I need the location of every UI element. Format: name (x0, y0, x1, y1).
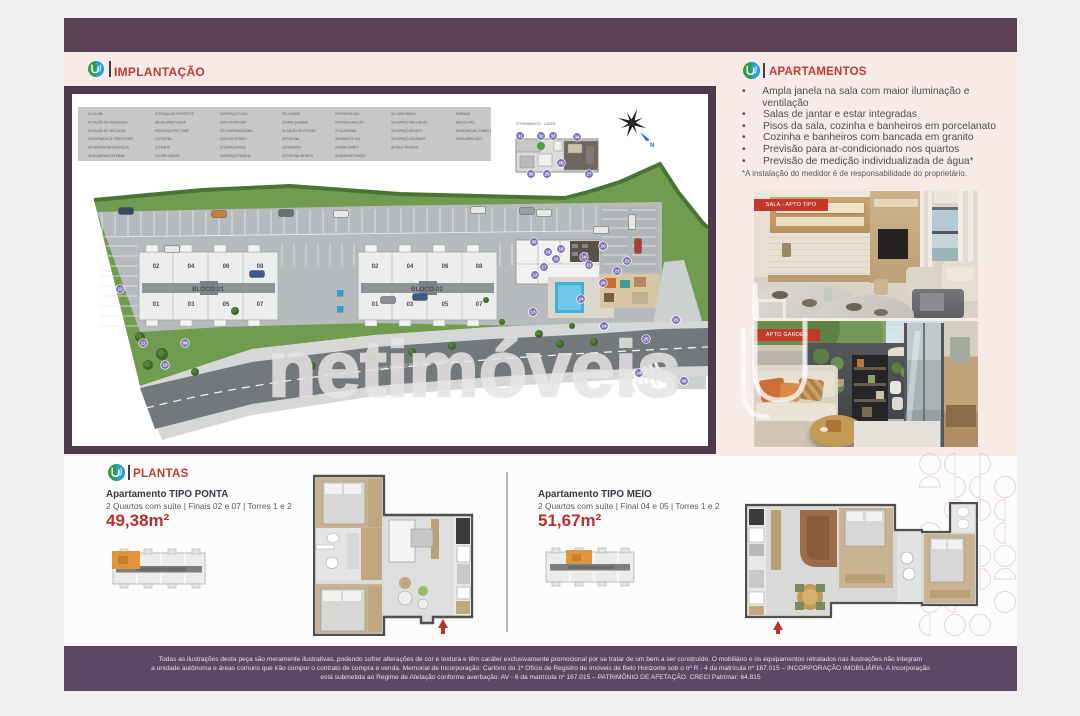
svg-text:11 HORTA: 11 HORTA (155, 146, 171, 150)
svg-text:02: 02 (153, 264, 160, 270)
svg-text:PARKING: PARKING (456, 112, 471, 116)
svg-text:22: 22 (624, 259, 630, 264)
svg-text:29 MINI CAMPO: 29 MINI CAMPO (335, 146, 359, 150)
svg-text:08 GOURMET DUNA: 08 GOURMET DUNA (155, 120, 186, 124)
svg-text:netimóveis: netimóveis (268, 324, 681, 413)
svg-text:18 ESPAÇO FAMÍLIA: 18 ESPAÇO FAMÍLIA (220, 154, 251, 158)
svg-text:19: 19 (581, 255, 587, 260)
svg-text:07: 07 (257, 302, 264, 308)
svg-text:09: 09 (182, 341, 188, 346)
svg-text:26 PRAÇA ADULTO: 26 PRAÇA ADULTO (335, 120, 364, 124)
svg-text:04: 04 (188, 264, 195, 270)
svg-text:24: 24 (578, 297, 584, 302)
svg-text:33 ESPAÇO BEAUTY: 33 ESPAÇO BEAUTY (391, 129, 423, 133)
svg-text:08: 08 (257, 264, 264, 270)
svg-text:27: 27 (586, 172, 592, 177)
svg-text:24 PISCINA INFANTIL: 24 PISCINA INFANTIL (282, 154, 314, 158)
svg-text:06 ACADEMIA EXTERNA: 06 ACADEMIA EXTERNA (88, 154, 126, 158)
svg-text:16: 16 (545, 250, 551, 255)
svg-text:31: 31 (517, 134, 523, 139)
svg-text:BICICLETAS: BICICLETAS (456, 120, 474, 124)
svg-text:01: 01 (372, 302, 379, 308)
svg-text:25: 25 (673, 318, 679, 323)
svg-text:17 ESPAÇO KIDS: 17 ESPAÇO KIDS (220, 146, 246, 150)
svg-text:2º PAVIMENTO - LAZER: 2º PAVIMENTO - LAZER (516, 122, 556, 126)
svg-text:32 ESPAÇO WELLNESS: 32 ESPAÇO WELLNESS (391, 120, 427, 124)
svg-text:03: 03 (188, 302, 195, 308)
svg-text:01: 01 (153, 302, 160, 308)
svg-text:06: 06 (442, 264, 449, 270)
svg-text:31 COWORKING: 31 COWORKING (391, 112, 416, 116)
svg-text:02 SALÃO DE MUDANÇAS: 02 SALÃO DE MUDANÇAS (88, 119, 128, 124)
svg-text:13: 13 (530, 310, 536, 315)
svg-text:17: 17 (541, 265, 547, 270)
svg-text:22 PISCINA: 22 PISCINA (282, 137, 300, 141)
svg-text:13 ESPAÇO FOGO: 13 ESPAÇO FOGO (220, 112, 248, 116)
svg-text:13: 13 (532, 273, 538, 278)
svg-text:29: 29 (544, 172, 550, 177)
svg-text:21 SALÃO DE FESTAS: 21 SALÃO DE FESTAS (282, 128, 315, 133)
svg-text:28 MIRANTE SUL: 28 MIRANTE SUL (335, 137, 361, 141)
svg-text:27 ACADEMIA: 27 ACADEMIA (335, 129, 357, 133)
svg-text:14 PLAYGROUND: 14 PLAYGROUND (220, 120, 247, 124)
svg-text:02: 02 (372, 264, 379, 270)
svg-text:12 GRELHADOS: 12 GRELHADOS (155, 154, 179, 158)
svg-text:RESIDENCIAL CONECT: RESIDENCIAL CONECT (456, 129, 492, 133)
svg-text:10: 10 (162, 363, 168, 368)
svg-text:01 CLUBE: 01 CLUBE (88, 112, 103, 116)
svg-text:34 ESPAÇO GOURMET: 34 ESPAÇO GOURMET (391, 137, 426, 141)
svg-text:16 BICICLETÁRIO: 16 BICICLETÁRIO (220, 137, 247, 141)
svg-text:08: 08 (476, 264, 483, 270)
svg-text:05: 05 (442, 302, 449, 308)
svg-text:N: N (650, 143, 654, 149)
svg-text:05 GUARITA DE SERVIÇOS: 05 GUARITA DE SERVIÇOS (88, 146, 129, 150)
svg-text:06: 06 (223, 264, 230, 270)
svg-text:25 PERGOLADO: 25 PERGOLADO (335, 112, 360, 116)
svg-text:03 SALÃO DE VEÍCULOS: 03 SALÃO DE VEÍCULOS (88, 128, 125, 133)
svg-text:10 PONTAL: 10 PONTAL (155, 137, 172, 141)
svg-text:21: 21 (586, 263, 592, 268)
svg-text:07 PRAÇA DE ESPORTES: 07 PRAÇA DE ESPORTES (155, 112, 194, 116)
svg-text:03: 03 (407, 302, 414, 308)
svg-text:20 MINI QUADRA: 20 MINI QUADRA (282, 120, 309, 124)
svg-text:15 CHURRASQUEIRA: 15 CHURRASQUEIRA (220, 129, 253, 133)
svg-text:32: 32 (538, 134, 544, 139)
svg-text:18: 18 (558, 247, 564, 252)
svg-text:33: 33 (550, 134, 556, 139)
svg-text:35 SALA TÉCNICA: 35 SALA TÉCNICA (391, 145, 419, 150)
svg-text:34: 34 (574, 135, 580, 140)
svg-text:04 ENTRADA DE PEDESTRES: 04 ENTRADA DE PEDESTRES (88, 137, 133, 141)
svg-text:19 LOUNGE: 19 LOUNGE (282, 112, 300, 116)
svg-text:30: 30 (528, 172, 534, 177)
svg-text:23 REDÁRIO: 23 REDÁRIO (282, 146, 301, 150)
svg-text:20: 20 (600, 244, 606, 249)
svg-text:26: 26 (600, 281, 606, 286)
svg-text:30 ADMINISTRAÇÃO: 30 ADMINISTRAÇÃO (335, 153, 366, 158)
svg-text:09 ESPAÇO PET CARE: 09 ESPAÇO PET CARE (155, 129, 189, 133)
svg-text:05: 05 (531, 240, 537, 245)
svg-text:BLOCO 01: BLOCO 01 (192, 286, 224, 293)
svg-text:07: 07 (476, 302, 483, 308)
svg-text:28: 28 (558, 161, 564, 166)
svg-text:08: 08 (681, 379, 687, 384)
svg-text:04: 04 (407, 264, 414, 270)
svg-text:VAGA MERCADO: VAGA MERCADO (456, 137, 482, 141)
svg-text:BLOCO 02: BLOCO 02 (411, 286, 443, 293)
svg-text:11: 11 (141, 341, 146, 346)
svg-text:12: 12 (117, 287, 123, 292)
svg-text:23: 23 (614, 269, 620, 274)
svg-text:05: 05 (223, 302, 230, 308)
svg-text:15: 15 (553, 257, 559, 262)
